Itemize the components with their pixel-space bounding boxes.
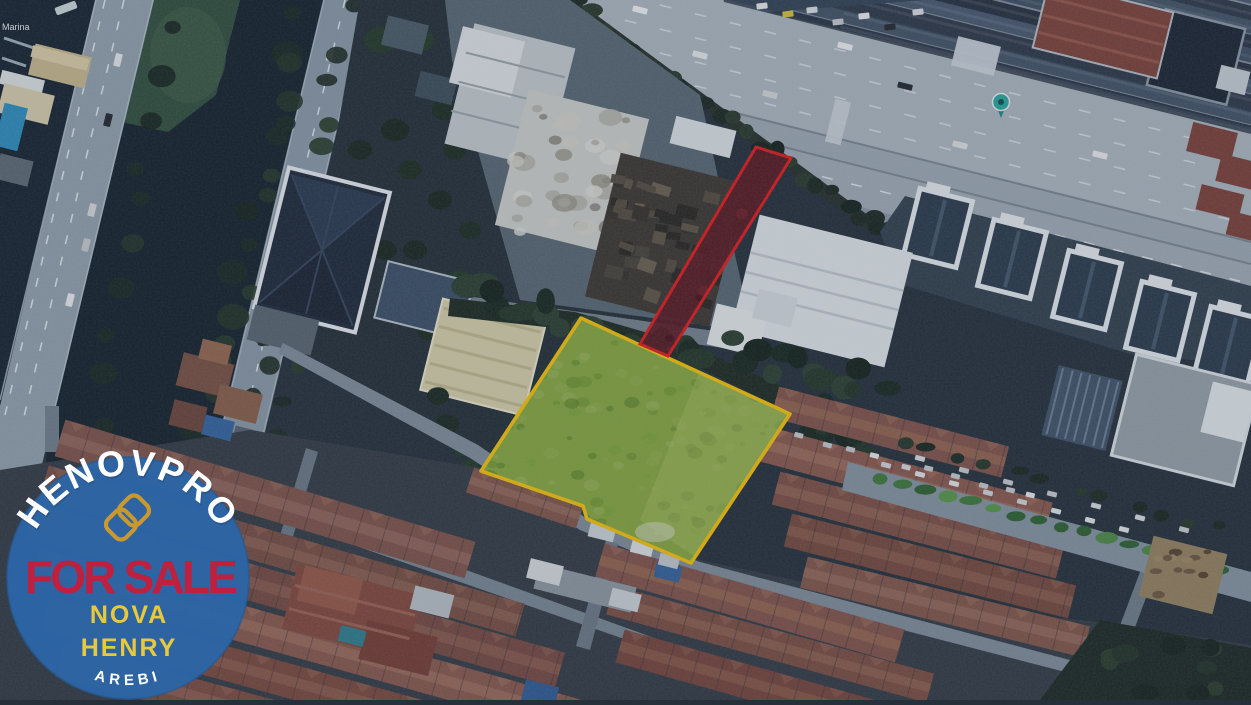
svg-text:HENRY: HENRY <box>81 634 178 662</box>
svg-text:FOR SALE: FOR SALE <box>25 551 236 603</box>
svg-text:NOVA: NOVA <box>90 601 168 629</box>
